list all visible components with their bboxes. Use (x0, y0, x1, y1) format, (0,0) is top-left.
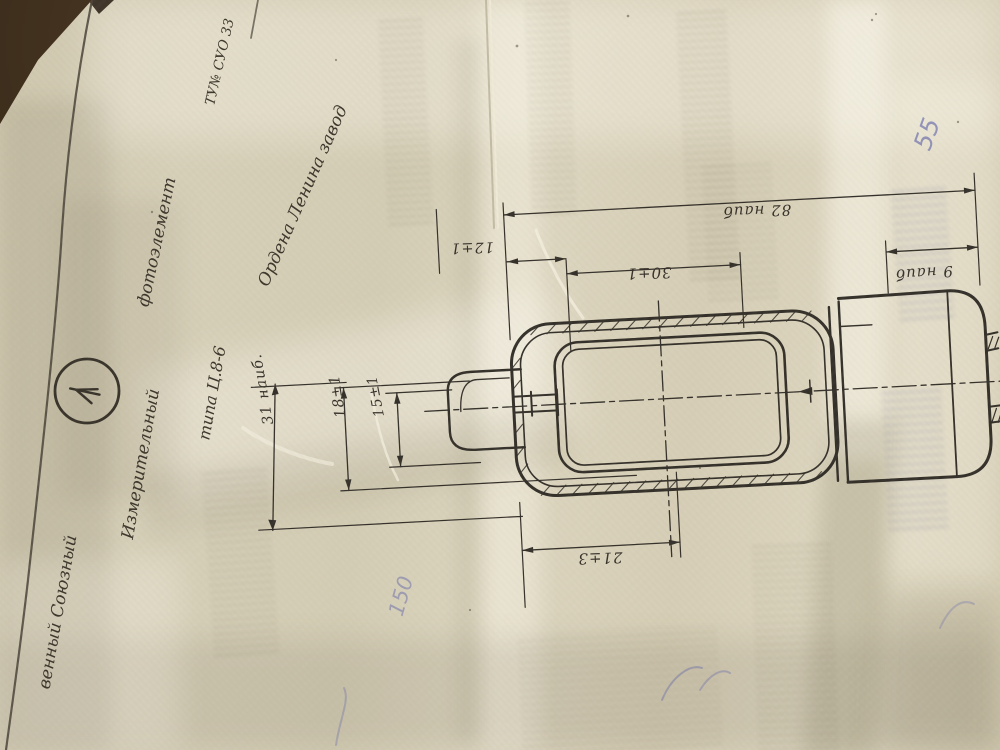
dim-line-9 (886, 247, 978, 252)
centerline-arrow (798, 387, 812, 396)
technical-drawing-svg (0, 0, 1000, 750)
body-base-joint (829, 302, 848, 483)
centerline-vertical (658, 301, 671, 557)
factory-logo-icon (55, 359, 119, 423)
dimension-label-30: 30±1 (626, 263, 672, 283)
crease-line (486, 0, 494, 228)
form-border-tick (251, 0, 258, 38)
crease-highlight (243, 428, 332, 464)
paper-sheet: венный Союзный Ордена Ленина завод ТУ№ С… (0, 0, 1000, 750)
connector-inner-arc (459, 378, 511, 412)
blue-scribbles (336, 602, 974, 745)
photo-scene: венный Союзный Ордена Ленина завод ТУ№ С… (0, 0, 1000, 750)
dim-line-15 (397, 393, 401, 467)
dimension-label-21: 21±3 (577, 548, 623, 568)
pin-lines (513, 394, 558, 412)
crease-highlight (490, 0, 498, 228)
base-cap-rim-line (840, 325, 872, 327)
dimension-label-12: 12±1 (450, 238, 494, 256)
dimension-label-82: 82 наиб (722, 201, 791, 221)
pin-ticks (531, 389, 558, 416)
